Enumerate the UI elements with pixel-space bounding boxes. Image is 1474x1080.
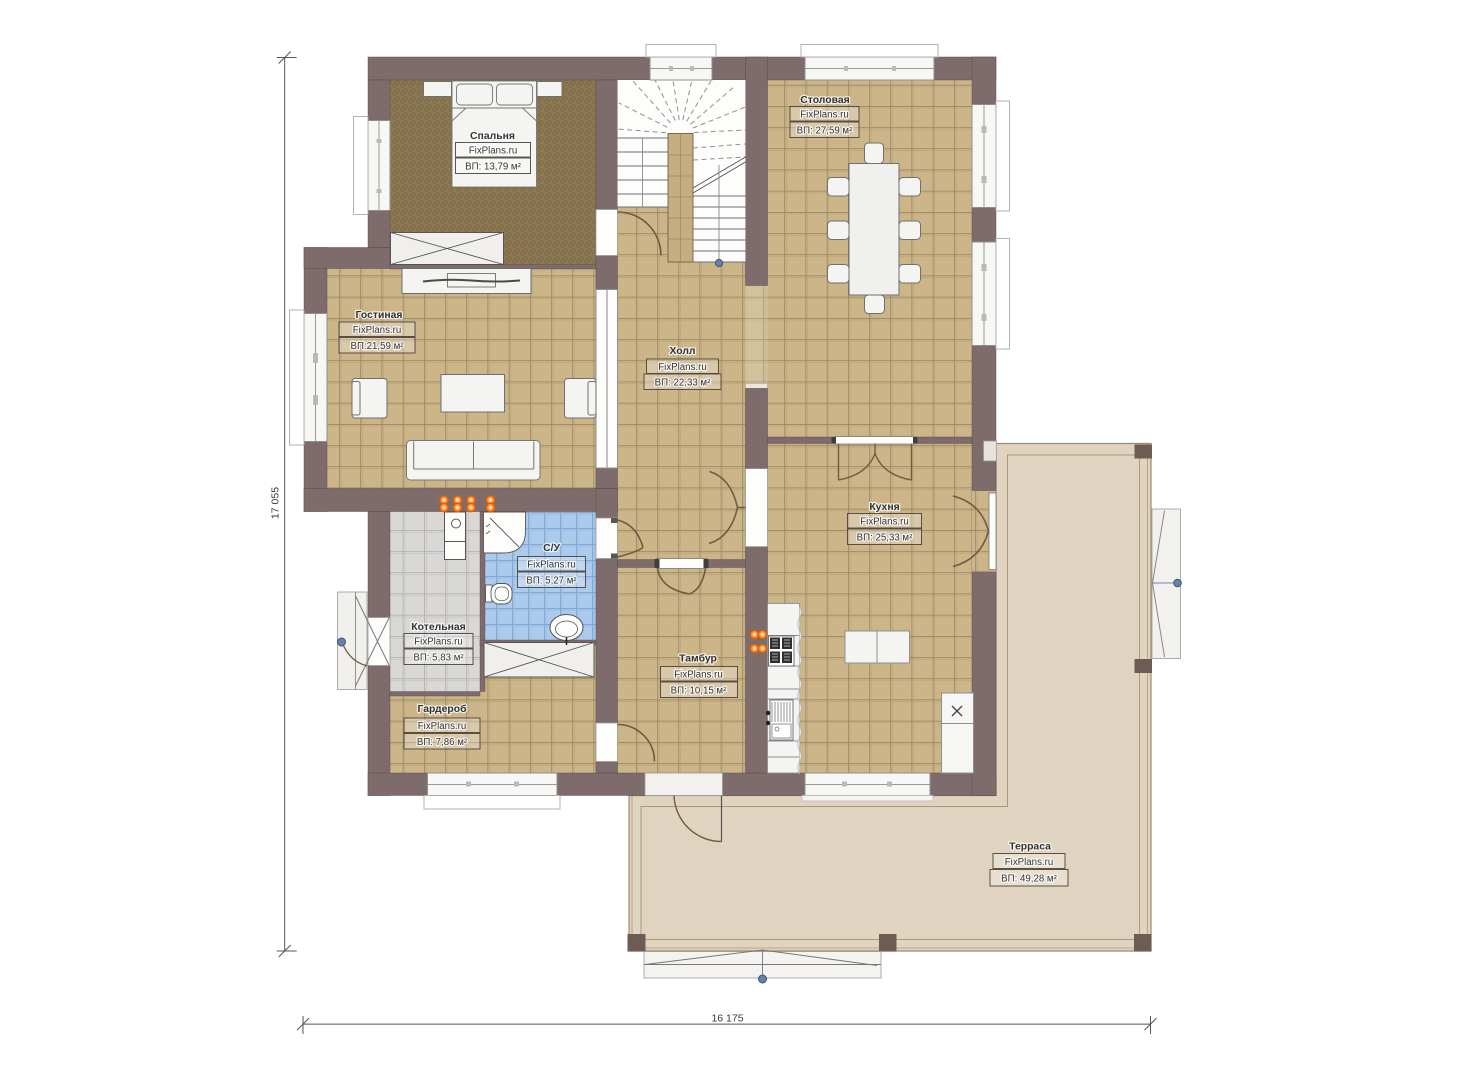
svg-text:FixPlans.ru: FixPlans.ru (469, 146, 517, 157)
svg-text:С/У: С/У (543, 543, 560, 554)
svg-text:Терраса: Терраса (1009, 842, 1051, 853)
svg-text:Гостиная: Гостиная (356, 310, 403, 321)
svg-text:Холл: Холл (669, 346, 695, 357)
svg-text:Спальня: Спальня (470, 131, 515, 142)
svg-text:FixPlans.ru: FixPlans.ru (353, 325, 401, 336)
svg-text:FixPlans.ru: FixPlans.ru (674, 670, 722, 681)
svg-text:ВП: 27,59 м²: ВП: 27,59 м² (797, 126, 853, 137)
svg-text:FixPlans.ru: FixPlans.ru (418, 721, 466, 732)
svg-text:ВП: 5,83 м²: ВП: 5,83 м² (413, 653, 464, 664)
svg-text:Столовая: Столовая (800, 95, 849, 106)
svg-text:ВП: 5,27 м²: ВП: 5,27 м² (526, 576, 577, 587)
svg-text:ВП:21,59 м²: ВП:21,59 м² (351, 341, 405, 352)
svg-text:Котельная: Котельная (411, 622, 465, 633)
svg-text:FixPlans.ru: FixPlans.ru (800, 110, 848, 121)
svg-text:ВП: 10,15 м²: ВП: 10,15 м² (671, 686, 727, 697)
svg-text:FixPlans.ru: FixPlans.ru (527, 560, 575, 571)
svg-text:16 175: 16 175 (711, 1013, 743, 1025)
svg-text:Гардероб: Гардероб (417, 703, 466, 715)
svg-text:Кухня: Кухня (869, 502, 899, 513)
svg-text:FixPlans.ru: FixPlans.ru (860, 517, 908, 528)
svg-text:FixPlans.ru: FixPlans.ru (414, 637, 462, 648)
svg-text:FixPlans.ru: FixPlans.ru (658, 362, 706, 373)
svg-text:17 055: 17 055 (270, 487, 282, 519)
svg-text:FixPlans.ru: FixPlans.ru (1005, 857, 1053, 868)
svg-text:ВП: 7,86 м²: ВП: 7,86 м² (417, 737, 468, 748)
svg-text:ВП: 25,33 м²: ВП: 25,33 м² (857, 533, 913, 544)
svg-text:ВП: 13,79 м²: ВП: 13,79 м² (465, 162, 521, 173)
svg-text:ВП: 22,33 м²: ВП: 22,33 м² (655, 378, 711, 389)
svg-text:Тамбур: Тамбур (679, 653, 717, 665)
svg-text:ВП: 49,28 м²: ВП: 49,28 м² (1001, 874, 1057, 885)
